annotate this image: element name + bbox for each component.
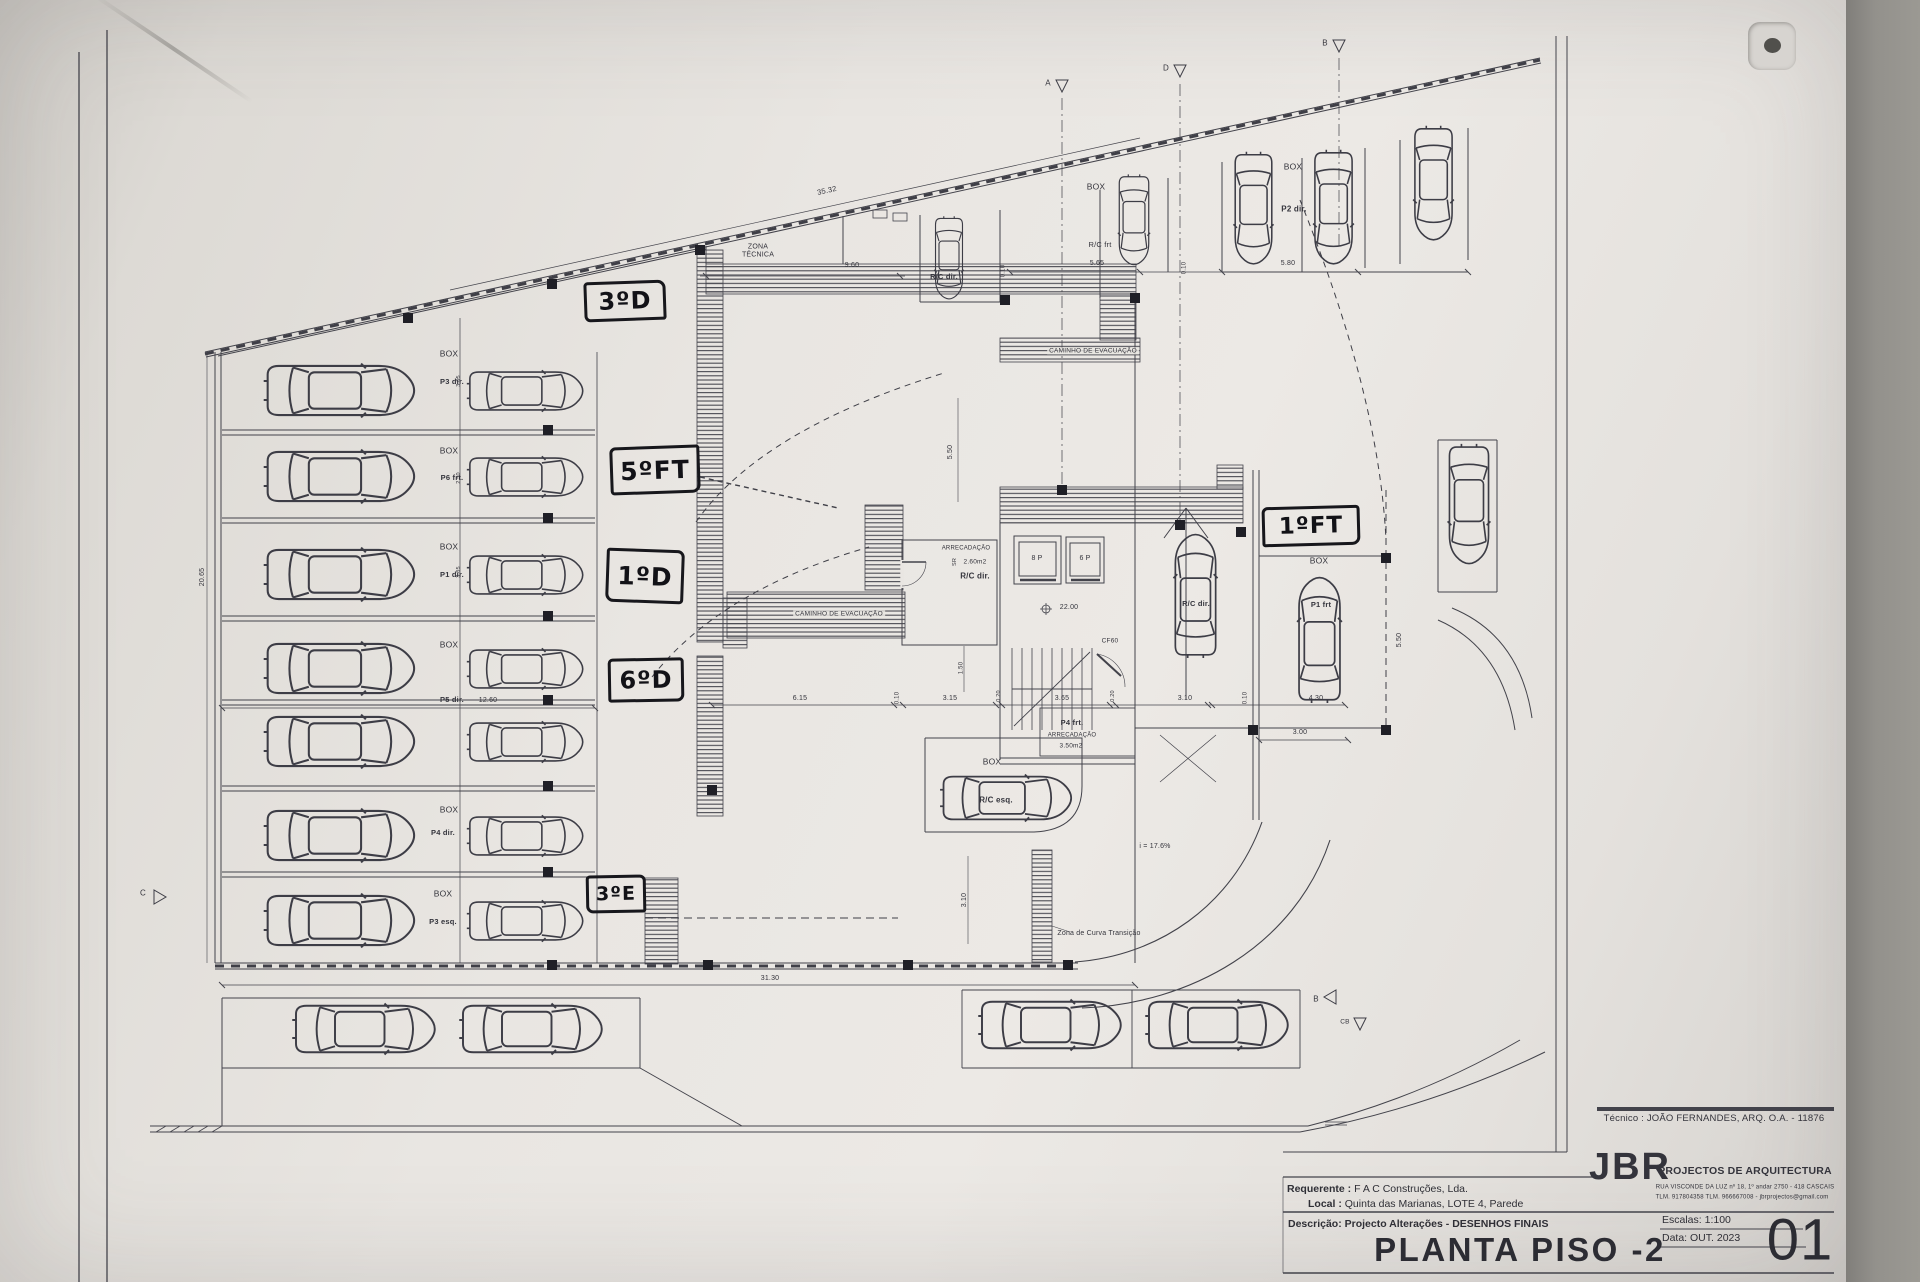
space-p5dir-label: P5 dir. (440, 696, 464, 704)
evacuation-path-label: CAMINHO DE EVACUAÇÃO (793, 610, 885, 617)
dim-305-row3: 3.05 (456, 566, 462, 578)
space-p2dir-label: P2 dir. (1281, 206, 1306, 215)
storage-a-label: ARRECADAÇÃO (942, 546, 991, 553)
plan-linework (0, 0, 1920, 1282)
dim-010-c: 0.10 (895, 692, 902, 704)
dim-960: 9.60 (845, 262, 859, 270)
local-value: Quinta das Marianas, LOTE 4, Parede (1345, 1198, 1524, 1210)
ramp-slope-label: i = 17.6% (1139, 843, 1170, 851)
wall-hatch-bands (645, 250, 1243, 964)
section-marker-a: A (1045, 80, 1051, 89)
box-label-row1: BOX (440, 349, 459, 358)
elevator-6p-label: 6 P (1079, 555, 1090, 563)
firm-name: PROJECTOS DE ARQUITECTURA (1658, 1166, 1832, 1178)
dim-010-b: 0.10 (1182, 262, 1189, 274)
box-label-row7: BOX (434, 889, 453, 898)
dim-550-b: 5.50 (1396, 633, 1404, 647)
dim-365-chain: 3.65 (1055, 695, 1069, 703)
elevator-8p-label: 8 P (1031, 555, 1042, 563)
section-marker-d: D (1163, 65, 1169, 74)
storage-b-owner: P4 frt. (1061, 719, 1084, 727)
tecnico-line: Técnico : JOÃO FERNANDES, ARQ. O.A. - 11… (1604, 1114, 1825, 1124)
space-rcfrt-label: R/C frt (1088, 241, 1111, 249)
sheet-number: 01 (1767, 1207, 1834, 1274)
level-value: 22.00 (1060, 604, 1079, 612)
curve-transition-label: Zona de Curva Transição (1057, 930, 1140, 938)
requerente-value: F A C Construções, Lda. (1354, 1183, 1468, 1195)
structure-lines (79, 30, 1834, 1282)
dim-310-vert: 3.10 (961, 893, 969, 907)
dim-020-b: 0.20 (1110, 690, 1116, 702)
dim-365-row1: 3.65 (456, 375, 462, 387)
local-label: Local : (1308, 1198, 1342, 1210)
dim-020-a: 0.20 (996, 690, 1002, 702)
dim-550-a: 5.50 (947, 445, 955, 459)
zona-tecnica-label: ZONA TÉCNICA (742, 243, 774, 258)
handwritten-3e: 3ºE (586, 874, 647, 913)
space-p4dir-label: P4 dir. (431, 829, 455, 837)
storage-b-area: 3.50m2 (1060, 742, 1083, 749)
dim-250-row2: 2.50 (456, 472, 462, 484)
dim-615: 6.15 (793, 695, 807, 703)
section-marker-c: C (140, 890, 146, 899)
descricao-label: Descrição: (1288, 1218, 1342, 1230)
handwritten-1ft: 1ºFT (1261, 505, 1360, 548)
space-p1frt-label: P1 frt (1311, 601, 1331, 609)
dim-3130: 31.30 (761, 975, 780, 983)
space-rcdir-centre-label: R/C dir. (1182, 600, 1210, 608)
space-p3esq-label: P3 esq. (429, 918, 457, 926)
storage-a-owner: R/C dir. (960, 573, 990, 582)
dim-300: 3.00 (1293, 729, 1307, 737)
scale-value: Escalas: 1:100 (1662, 1214, 1731, 1226)
sheet-title: PLANTA PISO -2 (1374, 1231, 1666, 1269)
firm-address: RUA VISCONDE DA LUZ nº 18, 1º andar 2750… (1656, 1185, 1835, 1192)
evacuation-path-label-2: CAMINHO DE EVACUAÇÃO (1047, 347, 1139, 354)
dim-580: 5.80 (1281, 260, 1295, 268)
box-label-row6: BOX (440, 805, 459, 814)
section-marker-cb: CB (1340, 1018, 1349, 1025)
section-marker-b2: B (1313, 996, 1319, 1005)
dim-010-a: 0.10 (1001, 265, 1008, 277)
storage-a-area: 2.60m2 (964, 558, 987, 565)
dim-310-chain: 3.10 (1178, 695, 1192, 703)
dim-430: 4.30 (1309, 695, 1323, 703)
box-label-p1frt: BOX (1310, 556, 1329, 565)
date-value: Data: OUT. 2023 (1662, 1232, 1740, 1244)
dim-2065: 20.65 (199, 568, 207, 587)
box-label-row3: BOX (440, 542, 459, 551)
handwritten-1d: 1ºD (605, 548, 685, 605)
storage-a-sr: SR (952, 558, 958, 566)
space-rcesq-label: R/C esq. (979, 797, 1013, 806)
box-label-row2: BOX (440, 446, 459, 455)
dim-150: 1.50 (959, 662, 966, 674)
box-label-row4: BOX (440, 640, 459, 649)
descricao-value: Projecto Alterações - DESENHOS FINAIS (1345, 1218, 1549, 1230)
dim-010-d: 0.10 (1243, 692, 1250, 704)
space-rcdir-top-label: R/C dir. (930, 273, 958, 281)
storage-b-label: ARRECADAÇÃO (1048, 733, 1097, 740)
box-label-top2: BOX (1284, 162, 1303, 171)
handwritten-5ft: 5ºFT (609, 444, 701, 495)
dim-315: 3.15 (943, 695, 957, 703)
section-marker-icons (154, 40, 1366, 1030)
box-label-rcesq: BOX (983, 757, 1002, 766)
box-label-top1: BOX (1087, 182, 1106, 191)
section-marker-b: B (1322, 40, 1328, 49)
handwritten-6d: 6ºD (608, 657, 685, 702)
firm-contacts: TLM. 917804358 TLM. 966667008 - jbrproje… (1656, 1195, 1829, 1202)
firedoor-cf60-label: CF60 (1102, 637, 1119, 644)
handwritten-3d: 3ºD (583, 280, 666, 323)
requerente-label: Requerente : (1287, 1183, 1351, 1195)
scanned-floor-plan: ZONA TÉCNICA CAMINHO DE EVACUAÇÃO CAMINH… (0, 0, 1920, 1282)
dim-565: 5.65 (1090, 260, 1104, 268)
dim-1260: 12.60 (479, 697, 498, 705)
